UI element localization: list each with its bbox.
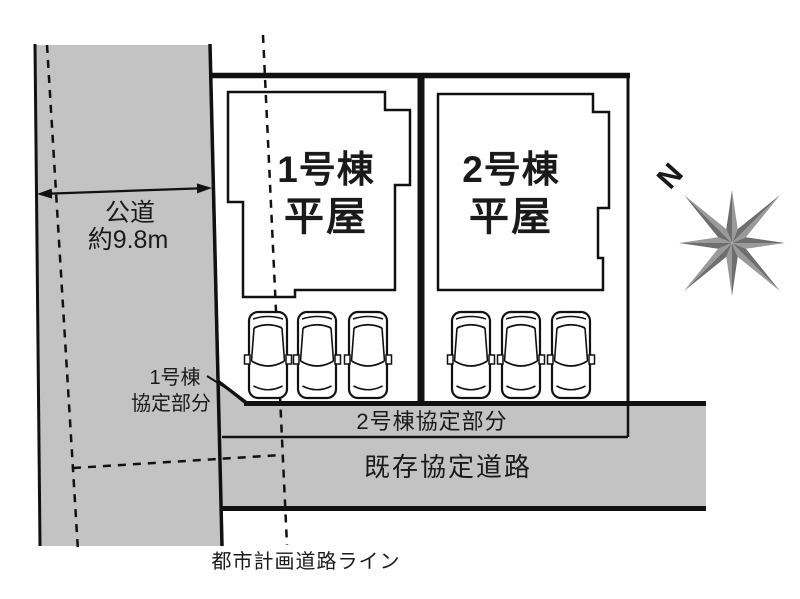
car-icon: [498, 312, 545, 398]
north-label: N: [651, 157, 690, 195]
building-2-name-label: 2号棟: [462, 149, 560, 190]
lot1-agreement-label-line2: 協定部分: [131, 392, 211, 415]
public-road-area: [35, 45, 222, 546]
car-icon: [345, 312, 392, 398]
car-icon: [548, 312, 595, 398]
lot2-agreement-label: 2号棟協定部分: [356, 409, 507, 434]
building-2-type-label: 平屋: [469, 195, 553, 239]
compass-rose-icon: [679, 190, 785, 296]
car-icon: [294, 312, 341, 398]
public-road-label: 公道: [105, 199, 155, 227]
existing-road-label: 既存協定道路: [364, 452, 532, 482]
building-1-name-label: 1号棟: [277, 149, 375, 190]
planning-road-line-label: 都市計画道路ライン: [212, 550, 401, 573]
car-icon: [245, 312, 292, 398]
site-plan-canvas: N 公道 約9.8m 1号棟 平屋 2号棟 平屋 1号棟 協定部分 2号棟協定部…: [0, 0, 800, 599]
building-2: [438, 94, 609, 290]
building-1-type-label: 平屋: [284, 195, 368, 239]
car-icon: [448, 312, 495, 398]
site-plan: N 公道 約9.8m 1号棟 平屋 2号棟 平屋 1号棟 協定部分 2号棟協定部…: [0, 0, 800, 599]
road-width-label: 約9.8m: [88, 226, 169, 254]
lot1-agreement-label-line1: 1号棟: [149, 366, 200, 389]
